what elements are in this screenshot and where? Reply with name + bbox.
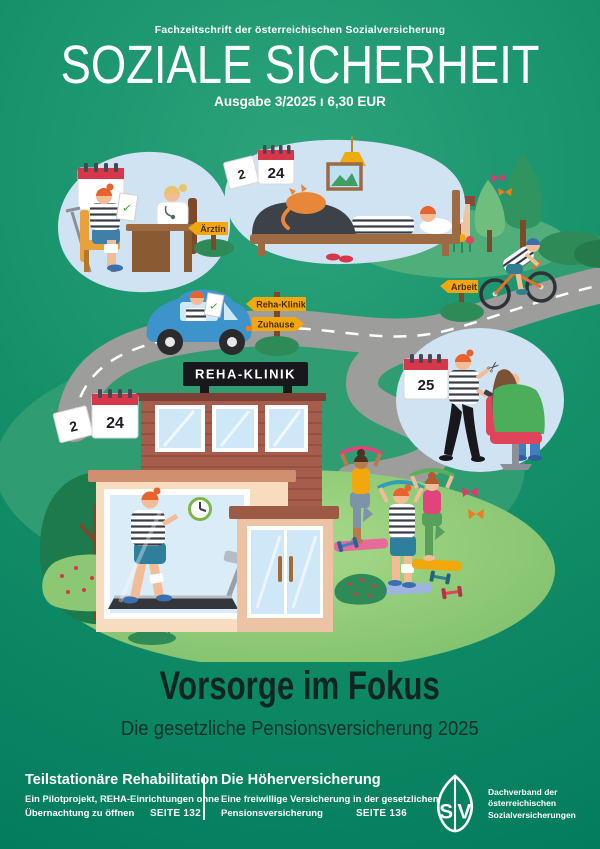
upper-windows — [155, 405, 308, 452]
sign-label: Ärztin — [200, 224, 226, 234]
sv-leaf-icon: S V — [429, 772, 481, 836]
home-rest-scene: 2 24 — [223, 136, 465, 264]
article-title: Die Höherversicherung — [221, 772, 407, 788]
calendar-day-24-home: 2 24 — [223, 145, 294, 189]
article-teaser-line: Ein Pilotprojekt, REHA-Einrichtungen ohn… — [25, 793, 201, 807]
article-teaser-line: Pensionsversicherung — [221, 807, 323, 821]
magazine-cover: Fachzeitschrift der österreichischen Soz… — [0, 0, 600, 849]
salon-cape — [493, 384, 545, 434]
sv-logo: S V Dachverband der österreichischen Soz… — [429, 772, 576, 836]
footer: Teilstationäre Rehabilitation Ein Pilotp… — [25, 772, 590, 836]
feature-title: Vorsorge im Fokus — [0, 664, 600, 708]
clinic-entrance — [229, 506, 339, 632]
svg-text:✓: ✓ — [121, 200, 133, 215]
tree — [475, 180, 505, 238]
wall-picture — [328, 164, 361, 189]
masthead: Fachzeitschrift der österreichischen Soz… — [0, 24, 600, 109]
sign-label: Zuhause — [257, 320, 294, 330]
article-teaser-line: Eine freiwillige Versicherung in der ges… — [221, 793, 407, 807]
sign-arbeit: Arbeit — [440, 280, 484, 322]
sign-label: Arbeit — [451, 282, 477, 292]
salon-chair — [490, 432, 542, 444]
logo-letter-s: S — [439, 801, 453, 824]
feature-block: Vorsorge im Fokus Die gesetzliche Pensio… — [0, 664, 600, 741]
article-teaser-line: Übernachtung zu öffnen — [25, 807, 134, 821]
article-page-ref: SEITE 136 — [356, 807, 407, 822]
logo-letter-v: V — [457, 801, 471, 824]
logo-caption: Dachverband der österreichischen Sozialv… — [488, 787, 576, 820]
article-page-ref: SEITE 132 — [150, 807, 201, 822]
feature-subtitle: Die gesetzliche Pensionsversicherung 202… — [0, 717, 600, 741]
footer-article-hoeherversicherung: Die Höherversicherung Eine freiwillige V… — [221, 772, 407, 821]
doctor-desk — [126, 224, 196, 231]
issue-line: Ausgabe 3/2025 ı 6,30 EUR — [0, 94, 600, 109]
calendar-number: 24 — [106, 415, 124, 432]
hairdresser-scene: 25 ✂ — [396, 328, 564, 472]
calendar-day-25: 25 — [404, 354, 448, 399]
clinic-sign-label: REHA-KLINIK — [195, 367, 296, 382]
calendar-number: 25 — [418, 377, 435, 394]
article-title: Teilstationäre Rehabilitation — [25, 772, 201, 788]
cover-illustration: 1 ✓ — [0, 132, 600, 662]
signpost-directions: Reha-Klinik Zuhause — [246, 292, 307, 356]
calendar-number: 24 — [268, 165, 285, 182]
footer-article-rehabilitation: Teilstationäre Rehabilitation Ein Pilotp… — [25, 772, 201, 821]
magazine-title: SOZIALE SICHERHEIT — [0, 38, 600, 93]
sign-label: Reha-Klinik — [256, 300, 307, 310]
slippers — [326, 254, 340, 261]
footer-divider — [203, 774, 205, 820]
